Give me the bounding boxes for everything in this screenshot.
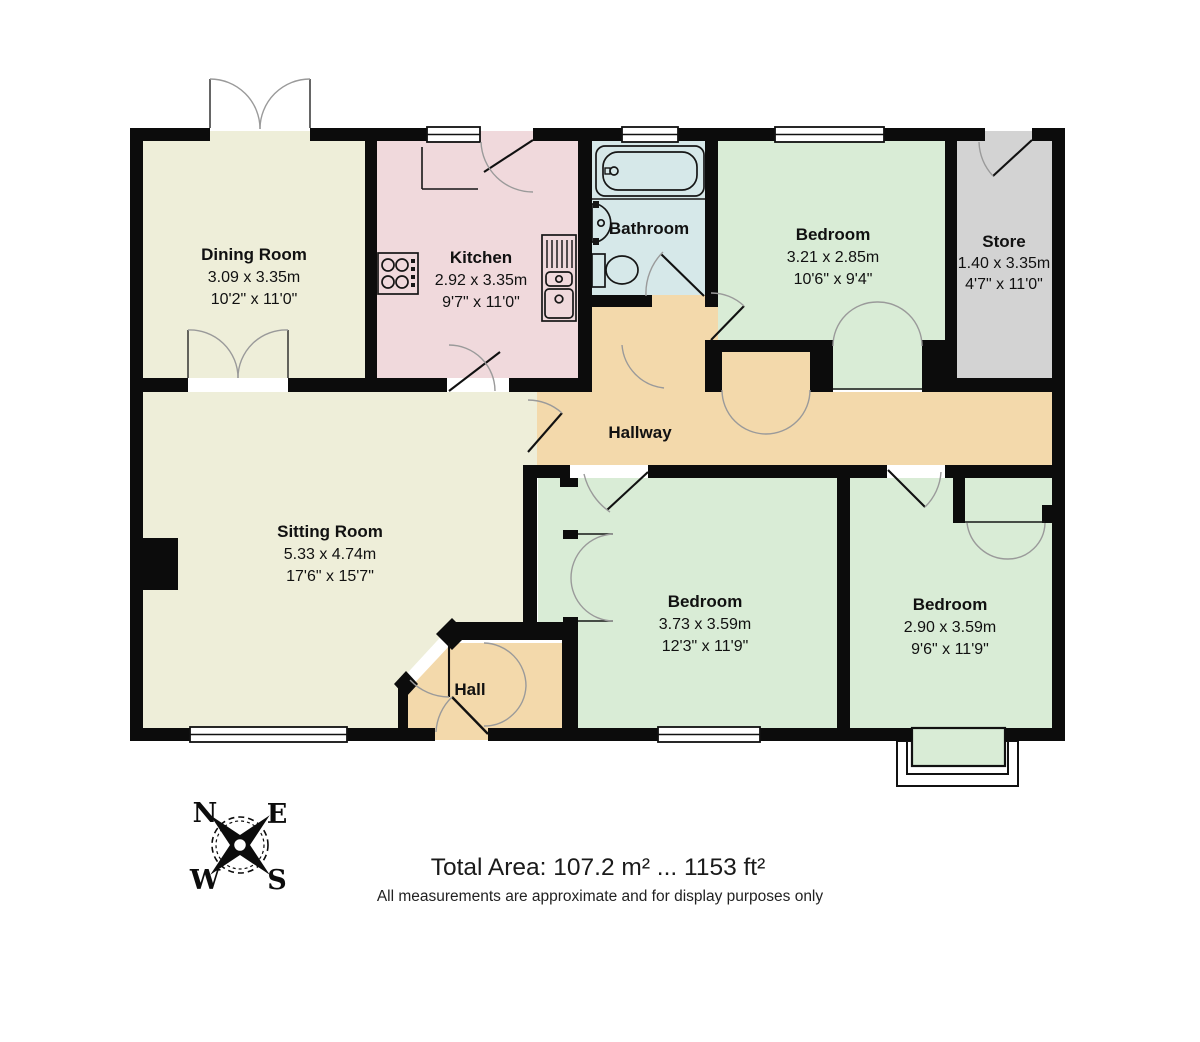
floorplan-canvas: Dining Room 3.09 x 3.35m 10'2" x 11'0" K… <box>0 0 1200 1042</box>
bedroom3-dim-m: 2.90 x 3.59m <box>904 619 997 636</box>
bedroom1-closet-recess <box>833 340 922 390</box>
disclaimer-text: All measurements are approximate and for… <box>377 888 824 905</box>
floorplan-page: Dining Room 3.09 x 3.35m 10'2" x 11'0" K… <box>0 0 1200 1042</box>
compass-south-label: S <box>267 865 287 896</box>
footer: Total Area: 107.2 m² ... 1153 ft² All me… <box>377 854 824 905</box>
total-area-text: Total Area: 107.2 m² ... 1153 ft² <box>431 854 766 881</box>
sitting-room-window <box>190 727 347 742</box>
compass-east-label: E <box>267 799 288 830</box>
bedroom3-dim-ft: 9'6" x 11'9" <box>911 641 989 658</box>
bedroom3-wardrobe-recess <box>965 478 1052 523</box>
sitting-room-dim-ft: 17'6" x 15'7" <box>286 568 374 585</box>
bedroom1-dim-ft: 10'6" x 9'4" <box>794 271 873 288</box>
kitchen-window <box>427 127 480 142</box>
store-door-gap <box>985 131 1032 143</box>
sitting-room-label: Sitting Room <box>277 522 383 541</box>
bathroom-floor <box>592 141 705 295</box>
bedroom2-window <box>658 727 760 742</box>
compass-rose-icon: N E W S <box>189 798 287 896</box>
bay-window <box>897 728 1018 786</box>
bathroom-window <box>622 127 678 142</box>
bedroom1-label: Bedroom <box>796 225 871 244</box>
kitchen-dim-m: 2.92 x 3.35m <box>435 272 528 289</box>
store-dim-ft: 4'7" x 11'0" <box>965 276 1043 293</box>
bedroom2-label: Bedroom <box>668 592 743 611</box>
lobby-floor <box>592 295 718 392</box>
bathroom-label: Bathroom <box>609 219 689 238</box>
sitting-room-dim-m: 5.33 x 4.74m <box>284 546 377 563</box>
dining-french-door-gap <box>210 131 310 143</box>
compass-north-label: N <box>193 798 218 829</box>
compass-west-label: W <box>189 865 221 896</box>
bedroom2-dim-ft: 12'3" x 11'9" <box>662 638 749 655</box>
bedroom3-label: Bedroom <box>913 595 988 614</box>
bedroom2-dim-m: 3.73 x 3.59m <box>659 616 752 633</box>
kitchen-door-gap <box>480 131 533 143</box>
dining-room-label: Dining Room <box>201 245 307 264</box>
store-dim-m: 1.40 x 3.35m <box>958 255 1051 272</box>
bedroom1-window <box>775 127 884 142</box>
hallway-cupboard-recess <box>722 352 810 392</box>
fireplace-icon <box>143 538 178 590</box>
front-door-gap <box>435 728 488 740</box>
bedroom1-dim-m: 3.21 x 2.85m <box>787 249 880 266</box>
store-label: Store <box>982 232 1025 251</box>
dining-room-dim-m: 3.09 x 3.35m <box>208 269 301 286</box>
kitchen-label: Kitchen <box>450 248 512 267</box>
hall-label: Hall <box>454 680 485 699</box>
kitchen-dim-ft: 9'7" x 11'0" <box>442 294 520 311</box>
hallway-label: Hallway <box>608 423 672 442</box>
dining-room-dim-ft: 10'2" x 11'0" <box>211 291 298 308</box>
